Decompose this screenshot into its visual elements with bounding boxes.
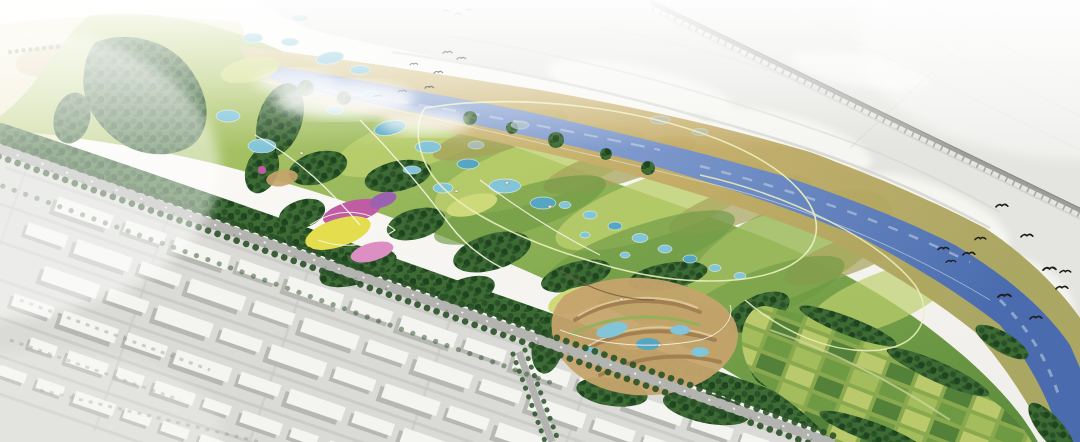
pond-cell: [620, 252, 630, 258]
aerial-rendering-canvas: [0, 0, 1080, 442]
pond: [457, 159, 479, 169]
terrace-pond: [636, 338, 660, 350]
pond-cell: [580, 232, 590, 238]
pond-cell: [683, 255, 697, 263]
pond: [489, 179, 521, 193]
pond-cell: [632, 234, 648, 243]
pavilion: [300, 152, 303, 154]
pavilion: [455, 190, 458, 192]
flower-dot: [258, 166, 266, 174]
pavilion: [620, 298, 624, 301]
terrace-pond: [670, 325, 690, 335]
pond-cell: [709, 265, 721, 272]
pavilion: [658, 344, 661, 346]
pond-cell: [608, 222, 622, 230]
masterplan-rendering: [0, 0, 1080, 442]
terrace-pond: [691, 347, 709, 357]
pond-cell: [559, 202, 571, 209]
tree-clump: [641, 161, 655, 175]
pond-cell: [583, 211, 597, 219]
pond: [530, 197, 556, 209]
pond-cell: [658, 245, 672, 253]
